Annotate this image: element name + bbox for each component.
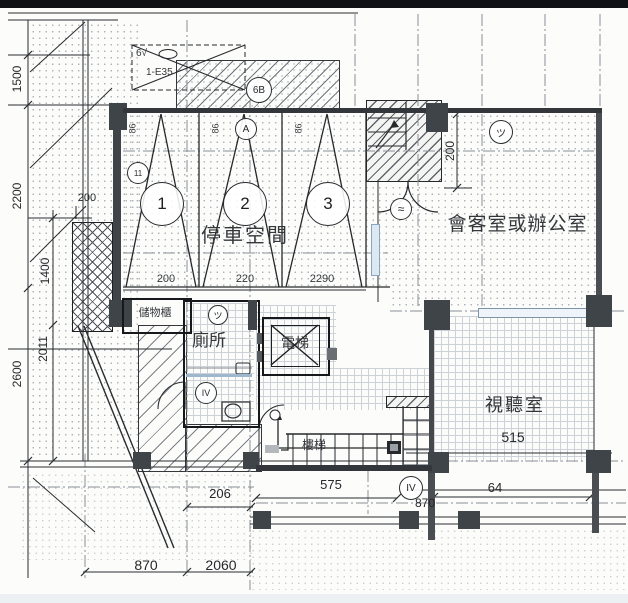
elevator-door-jamb-bottom (257, 351, 262, 362)
stall-2-width: 220 (224, 272, 266, 286)
stall-2-bubble: 2 (223, 182, 267, 226)
parking-west-wall (113, 130, 121, 312)
reception-north-wall (440, 108, 602, 113)
storage-label: 儲物櫃 (124, 306, 186, 320)
stair-south-wall (256, 465, 432, 471)
dim-left-2200: 2200 (12, 178, 24, 214)
reception-room-label: 會客室或辦公室 (430, 214, 605, 236)
av-se-column (586, 450, 611, 473)
dim-575: 575 (312, 478, 350, 493)
marker-toilet-iv-bubble: IV (195, 382, 217, 404)
window-band (478, 308, 594, 318)
marker-6b-bubble: 6B (246, 77, 272, 103)
linework (0, 0, 628, 603)
reception-east-wall (596, 113, 602, 299)
av-room-label: 視聽室 (470, 395, 560, 417)
reception-north-column (426, 103, 448, 132)
toilet-counter (186, 374, 252, 377)
dim-left-1500: 1500 (12, 61, 24, 97)
boundary-column-a (133, 452, 151, 469)
dim-right-200: 200 (445, 133, 457, 169)
revision-box-line1: 6√ (136, 48, 147, 59)
reception-se-column (586, 295, 612, 327)
elevator-label: 電梯 (266, 336, 324, 352)
toilet-label: 廁所 (192, 332, 226, 351)
top-border-bar (0, 0, 628, 8)
stall-3-width: 2290 (300, 272, 344, 286)
south-column-b (399, 511, 419, 529)
dim-2060-bottom: 2060 (198, 558, 244, 574)
marker-section-a-bubble: A (235, 118, 257, 140)
dim-left-small-200: 200 (70, 192, 104, 204)
bottom-margin-strip (0, 594, 628, 603)
toilet-ne-column (248, 300, 257, 330)
bay-label-1: 86 (128, 116, 139, 142)
floorplan-canvas: 停車空間 會客室或辦公室 視聽室 515 廁所 電梯 儲物櫃 樓梯 1 2 3 … (0, 0, 628, 603)
marker-11-bubble: 11 (127, 162, 149, 184)
marker-entry-bubble: ≈ (390, 198, 412, 220)
bay-label-2: 86 (211, 116, 222, 142)
parking-room-label: 停車空間 (195, 224, 295, 248)
dim-left-2600: 2600 (12, 356, 24, 392)
stall-1-bubble: 1 (140, 182, 184, 226)
south-column-c (458, 511, 480, 529)
bay-label-3: 86 (294, 116, 305, 142)
av-west-wall (429, 322, 434, 470)
dim-206: 206 (202, 487, 238, 502)
glass-door-panel (371, 224, 380, 276)
dim-870-bottom: 870 (128, 558, 164, 574)
marker-reception-tag-bubble: ツ (489, 120, 513, 144)
dim-left-2011: 2011 (38, 331, 50, 367)
east-wall-stub (592, 473, 599, 533)
dim-left-1400: 1400 (40, 253, 52, 289)
grid-centerlines (8, 14, 626, 590)
south-column-a (253, 511, 271, 529)
dim-64: 64 (480, 481, 510, 496)
stairs (259, 405, 431, 466)
av-room-area: 515 (490, 430, 536, 446)
site-lines (8, 13, 626, 578)
revision-box-line2: 1-E35 (146, 67, 173, 78)
elevator-call-box (327, 348, 337, 360)
parking-north-wall (123, 108, 440, 113)
stall-3-bubble: 3 (306, 182, 350, 226)
stairs-label: 樓梯 (294, 439, 334, 453)
av-nw-column (424, 300, 450, 330)
stall-1-width: 200 (145, 272, 187, 286)
marker-storage-tag-bubble: ツ (208, 305, 228, 325)
marker-grid-iv-bubble: IV (399, 476, 423, 500)
elevator-door-jamb-top (257, 333, 262, 344)
